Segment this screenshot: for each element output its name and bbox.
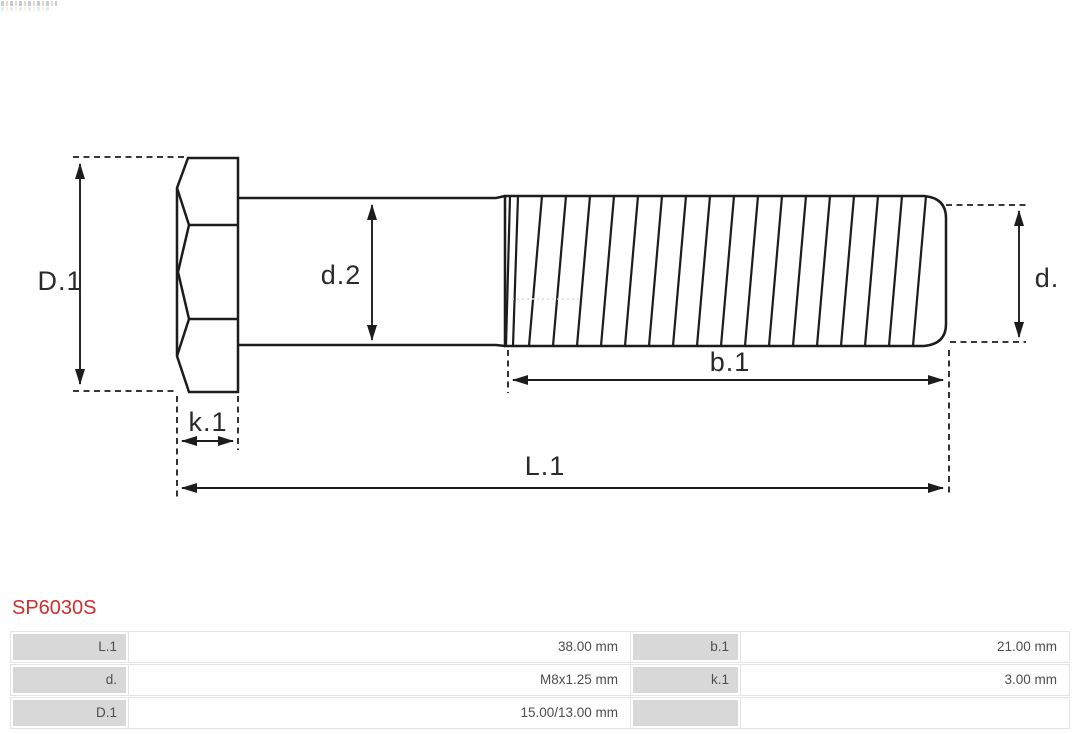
bolt-head — [177, 158, 238, 392]
table-row: L.1 38.00 mm b.1 21.00 mm — [10, 631, 1070, 663]
bolt-shank — [237, 196, 505, 346]
spec-label-cell: d. — [10, 664, 129, 696]
dimension-total-length: L.1 — [182, 451, 943, 488]
spec-table: L.1 38.00 mm b.1 21.00 mm d. M8x1.25 mm … — [10, 631, 1070, 730]
dimension-label: D.1 — [37, 266, 82, 296]
table-row: D.1 15.00/13.00 mm — [10, 697, 1070, 729]
spec-label-cell — [630, 697, 741, 729]
dimension-shank-diameter: d.2 — [321, 205, 372, 340]
dimension-thread-diameter: d. — [946, 205, 1059, 342]
spec-label-cell: L.1 — [10, 631, 129, 663]
dimension-thread-length: b.1 — [508, 347, 949, 497]
bolt-dimension-diagram: D.1 d.2 d. b.1 k.1 — [0, 0, 1080, 560]
table-row: d. M8x1.25 mm k.1 3.00 mm — [10, 664, 1070, 696]
dimension-head-diameter: D.1 — [37, 157, 186, 391]
product-sheet: D.1 d.2 d. b.1 k.1 — [0, 0, 1080, 734]
spec-label-cell: D.1 — [10, 697, 129, 729]
spec-value-cell: 21.00 mm — [740, 631, 1070, 663]
dimension-label: L.1 — [525, 451, 566, 481]
spec-label-cell: b.1 — [630, 631, 741, 663]
dimension-label: d. — [1035, 263, 1060, 293]
spec-label-cell: k.1 — [630, 664, 741, 696]
thread-outline — [505, 196, 946, 346]
part-number: SP6030S — [12, 597, 97, 620]
spec-value-cell: 15.00/13.00 mm — [128, 697, 631, 729]
spec-value-cell — [740, 697, 1070, 729]
head-outline — [177, 158, 238, 392]
spec-value-cell: 38.00 mm — [128, 631, 631, 663]
dimension-label: b.1 — [710, 347, 751, 377]
dimension-label: d.2 — [321, 260, 362, 290]
shank-bottom-edge — [237, 345, 505, 346]
spec-value-cell: 3.00 mm — [740, 664, 1070, 696]
dimension-head-height: k.1 — [177, 396, 238, 497]
spec-value-cell: M8x1.25 mm — [128, 664, 631, 696]
bolt-thread — [505, 196, 946, 346]
dimension-label: k.1 — [188, 407, 227, 437]
shank-top-edge — [237, 196, 505, 198]
